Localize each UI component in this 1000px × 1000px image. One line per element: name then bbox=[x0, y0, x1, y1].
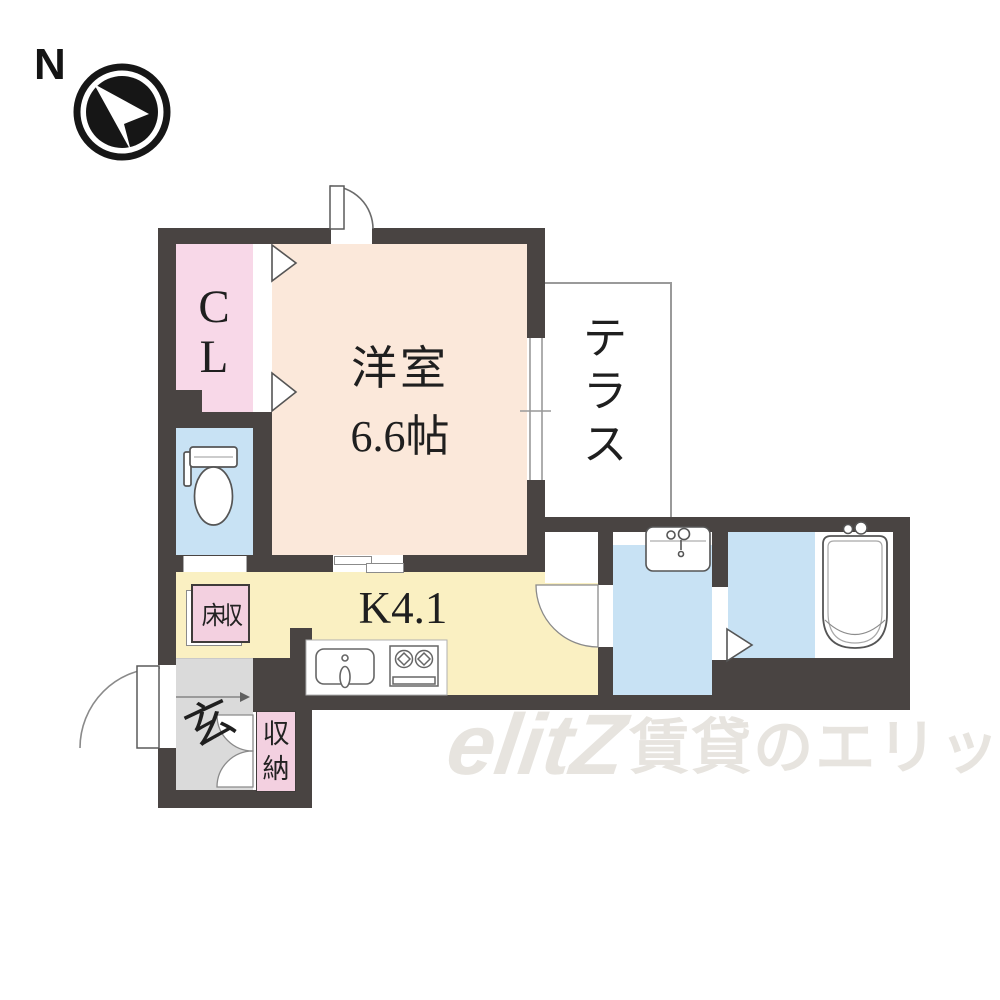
entrance-door-swing bbox=[80, 666, 160, 748]
terrace-label: テ ラ ス bbox=[580, 312, 630, 471]
terrace-window-gap bbox=[527, 338, 545, 480]
western-room-label: 洋室 bbox=[320, 332, 480, 398]
wall-storage-right bbox=[294, 712, 312, 790]
bathroom-floor bbox=[728, 532, 815, 658]
wall-bottom bbox=[290, 695, 910, 710]
wall-closet-corner bbox=[158, 390, 202, 428]
washroom-floor bbox=[613, 545, 712, 695]
wall-entrance-right bbox=[253, 658, 312, 712]
wall-bath-bottom bbox=[728, 658, 893, 695]
bathtub-area bbox=[815, 532, 893, 658]
brand-watermark: elitZ 賃貸のエリッツ bbox=[448, 696, 1000, 795]
compass-north-label: N bbox=[34, 40, 66, 90]
kitchen-floor-lower bbox=[312, 658, 598, 695]
brand-text: 賃貸のエリッツ bbox=[629, 714, 1000, 781]
toilet-floor bbox=[175, 428, 253, 555]
bathroom-door-gap bbox=[712, 587, 728, 660]
wall-toilet-right bbox=[253, 412, 272, 555]
floor-storage-label: 床収 bbox=[202, 596, 239, 632]
sliding-door-panel bbox=[366, 563, 404, 573]
toilet-door-gap bbox=[183, 556, 247, 572]
wall-entrance-bottom bbox=[158, 790, 312, 808]
wall-right bbox=[893, 517, 910, 710]
storage-badge: 収 納 bbox=[256, 711, 296, 792]
brand-logo: elitZ bbox=[441, 696, 632, 795]
compass-icon bbox=[77, 67, 167, 157]
closet-label: C L bbox=[188, 282, 240, 382]
storage-label: 収 納 bbox=[263, 717, 290, 787]
floorplan-canvas: elitZ 賃貸のエリッツ N bbox=[0, 0, 1000, 1000]
western-room-size: 6.6帖 bbox=[312, 400, 488, 464]
closet-door-track bbox=[253, 244, 272, 412]
corridor-white-area bbox=[545, 532, 598, 583]
room-top-door-gap bbox=[331, 228, 372, 244]
floor-storage-badge: 床収 bbox=[191, 584, 250, 643]
room-door-swing bbox=[330, 186, 373, 229]
wall-counter-left bbox=[290, 628, 312, 658]
kitchen-label: K4.1 bbox=[348, 582, 458, 634]
washroom-door-gap bbox=[598, 585, 613, 647]
wall-lower-top bbox=[542, 517, 910, 532]
